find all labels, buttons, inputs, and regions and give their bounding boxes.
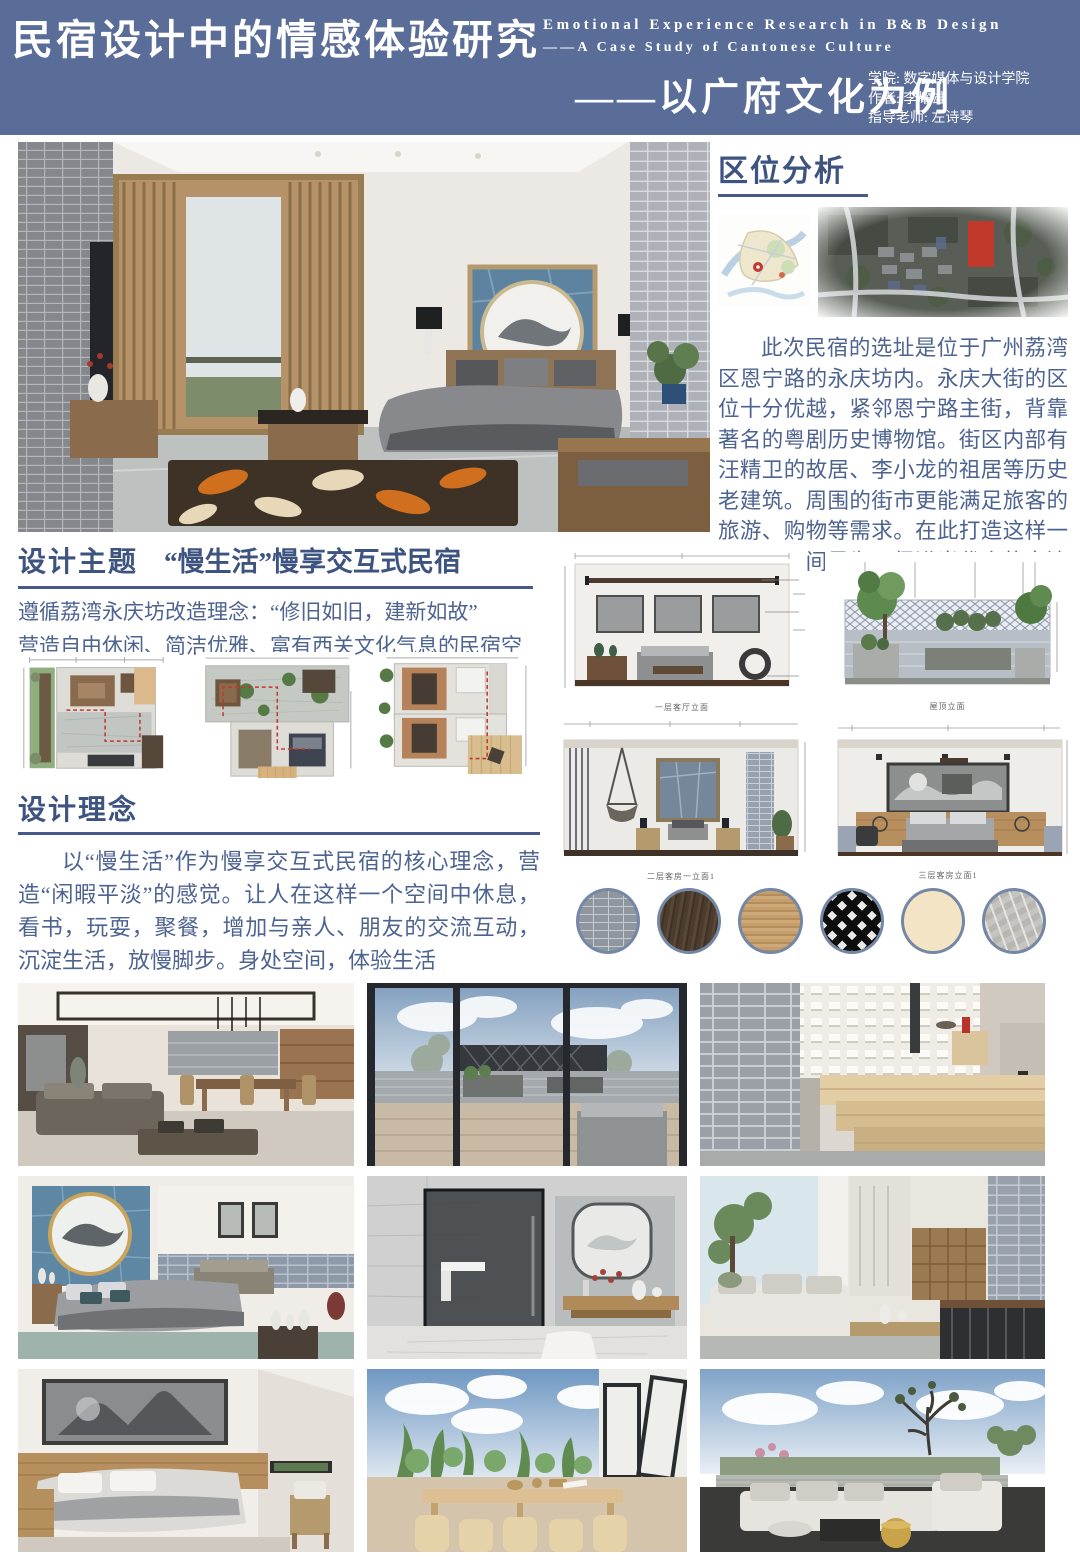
elevation-living-room-image: [557, 548, 807, 698]
location-heading-rule: [718, 194, 868, 197]
theme-line-1: 遵循荔湾永庆坊改造理念：“修旧如旧，建新如故”: [18, 597, 533, 629]
floor-plan-level-1-image: [18, 652, 178, 778]
poster-title-en-line2: ——A Case Study of Cantonese Culture: [543, 37, 1080, 59]
concept-heading: 设计理念: [18, 788, 540, 828]
concept-heading-rule: [18, 832, 540, 835]
poster-title-en: Emotional Experience Research in B&B Des…: [543, 14, 1080, 59]
elevation-guest-room-swing-image: [550, 712, 812, 867]
gallery-photo-stepped-wood-platform: [700, 983, 1045, 1166]
gallery-photo-living-dining-room: [18, 983, 354, 1166]
credit-author: 作者: 李耀雄: [868, 90, 1029, 110]
gallery-photo-bathroom: [367, 1176, 687, 1359]
section-location-analysis: 区位分析: [718, 146, 1068, 608]
theme-subheading: “慢生活”慢享交互式民宿: [164, 540, 461, 579]
poster-page: 民宿设计中的情感体验研究 Emotional Experience Resear…: [0, 0, 1080, 1560]
material-swatch-metal-lattice: [820, 888, 884, 954]
poster-credits: 学院: 数字媒体与设计学院 作者: 李耀雄 指导老师: 左诗琴: [868, 70, 1029, 129]
floor-plan-level-2-image: [196, 652, 356, 788]
gallery-photo-bedroom-round-art: [18, 1176, 354, 1359]
elevation-living-room: 一层客厅立面: [557, 548, 807, 713]
elevation-caption: 三层客房立面1: [822, 870, 1074, 881]
material-swatch-oak-wood: [738, 888, 802, 954]
section-design-concept: 设计理念 以“慢生活”作为慢享交互式民宿的核心理念，营造“闲暇平淡”的感觉。让人…: [18, 788, 540, 977]
credit-advisor: 指导老师: 左诗琴: [868, 109, 1029, 129]
material-swatches: [576, 888, 1046, 954]
location-heading: 区位分析: [718, 146, 1068, 190]
elevation-caption: 二层客房一立面1: [550, 871, 812, 882]
material-swatch-dark-walnut: [657, 888, 721, 954]
material-swatch-cream-paint: [901, 888, 965, 954]
gallery-photo-roof-terrace-glass: [367, 983, 687, 1166]
render-gallery: [18, 983, 1045, 1552]
poster-header: 民宿设计中的情感体验研究 Emotional Experience Resear…: [0, 0, 1080, 135]
elevation-roof-garden-image: [825, 552, 1070, 697]
gallery-photo-terrace-dining: [367, 1369, 687, 1552]
poster-title-cn: 民宿设计中的情感体验研究: [12, 6, 540, 66]
elevation-caption: 屋顶立面: [825, 701, 1070, 712]
poster-title-en-line1: Emotional Experience Research in B&B Des…: [543, 14, 1080, 37]
theme-heading-rule: [18, 586, 533, 589]
elevation-guest-room-bed: 三层客房立面1: [822, 714, 1074, 881]
credit-school: 学院: 数字媒体与设计学院: [868, 70, 1029, 90]
floor-plan-level-3-image: [373, 652, 533, 778]
theme-heading: 设计主题: [18, 540, 138, 580]
hero-bedroom-render-image: [18, 142, 710, 532]
elevation-guest-room-swing: 二层客房一立面1: [550, 712, 812, 882]
district-schematic-map-image: [718, 215, 810, 307]
gallery-photo-roof-lounge-sofa: [700, 1369, 1045, 1552]
material-swatch-grey-marble: [982, 888, 1046, 954]
gallery-photo-lounge-stair-landing: [700, 1176, 1045, 1359]
floor-plans: [18, 652, 533, 788]
gallery-photo-bedroom-panorama-art: [18, 1369, 354, 1552]
elevation-guest-room-bed-image: [822, 714, 1074, 866]
elevation-roof-garden: 屋顶立面: [825, 552, 1070, 712]
site-satellite-map-image: [818, 207, 1068, 317]
material-swatch-grey-brick: [576, 888, 640, 954]
location-maps: [718, 207, 1068, 319]
concept-paragraph: 以“慢生活”作为慢享交互式民宿的核心理念，营造“闲暇平淡”的感觉。让人在这样一个…: [18, 845, 540, 977]
